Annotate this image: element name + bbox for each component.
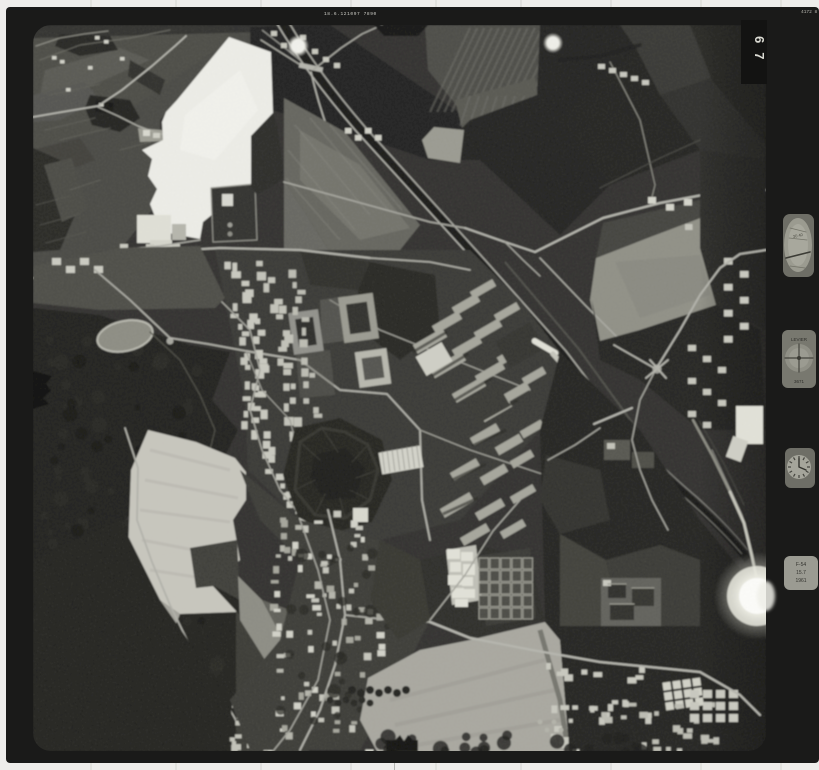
svg-text:67: 67: [752, 36, 767, 68]
svg-text:18.6.121097 7890: 18.6.121097 7890: [324, 11, 377, 17]
svg-text:1961: 1961: [795, 578, 806, 584]
svg-text:4172 8: 4172 8: [801, 9, 818, 15]
svg-text:LEVIER: LEVIER: [791, 337, 808, 342]
svg-text:3671: 3671: [794, 379, 805, 384]
svg-text:F-54: F-54: [796, 562, 807, 568]
svg-text:15.7: 15.7: [796, 570, 806, 576]
